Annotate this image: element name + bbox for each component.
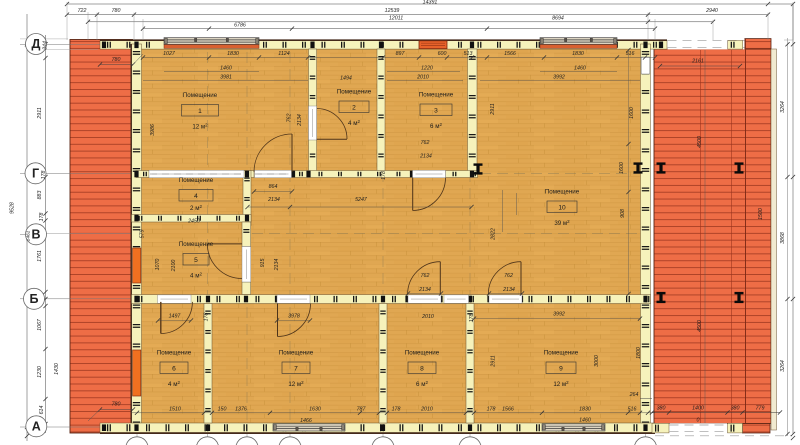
svg-text:762: 762 [421, 140, 430, 146]
svg-text:150: 150 [218, 407, 227, 413]
svg-text:178: 178 [39, 213, 45, 222]
svg-text:Д: Д [32, 37, 41, 51]
svg-text:2911: 2911 [490, 103, 496, 115]
svg-text:178: 178 [487, 407, 496, 413]
svg-text:380: 380 [731, 406, 740, 412]
svg-text:8694: 8694 [552, 16, 564, 22]
svg-text:780: 780 [112, 401, 121, 407]
svg-text:787: 787 [357, 407, 367, 413]
svg-text:1: 1 [198, 108, 202, 115]
svg-text:2: 2 [352, 104, 356, 111]
svg-text:1761: 1761 [37, 250, 43, 262]
svg-text:1460: 1460 [220, 66, 232, 72]
svg-text:1400: 1400 [692, 406, 704, 412]
svg-text:1220: 1220 [421, 66, 433, 72]
svg-text:2134: 2134 [267, 197, 280, 203]
svg-text:Помещение: Помещение [545, 189, 580, 196]
svg-text:780: 780 [112, 8, 121, 14]
svg-text:А: А [32, 419, 41, 433]
svg-text:3868: 3868 [780, 232, 786, 244]
svg-text:1566: 1566 [502, 407, 514, 413]
svg-text:897: 897 [396, 51, 406, 57]
svg-text:908: 908 [620, 209, 626, 218]
svg-text:614: 614 [39, 406, 45, 415]
svg-text:14391: 14391 [423, 0, 438, 5]
svg-text:2911: 2911 [37, 107, 43, 119]
svg-text:1830: 1830 [572, 51, 584, 57]
svg-text:5247: 5247 [355, 197, 368, 203]
svg-text:1230: 1230 [37, 366, 43, 378]
svg-text:1497: 1497 [169, 314, 182, 320]
svg-text:1460: 1460 [579, 417, 591, 423]
svg-text:178: 178 [392, 407, 401, 413]
svg-text:2134: 2134 [502, 287, 515, 293]
svg-text:1510: 1510 [169, 407, 181, 413]
svg-text:344: 344 [43, 41, 49, 50]
svg-text:1566: 1566 [504, 51, 516, 57]
svg-text:Б: Б [30, 292, 39, 306]
svg-text:4500: 4500 [697, 136, 703, 148]
svg-text:Помещение: Помещение [183, 92, 218, 99]
svg-text:762: 762 [287, 114, 293, 123]
svg-text:779: 779 [756, 406, 765, 412]
svg-text:380: 380 [657, 406, 666, 412]
svg-text:1376: 1376 [235, 407, 247, 413]
svg-text:1027: 1027 [163, 51, 176, 57]
svg-text:3992: 3992 [553, 312, 565, 318]
svg-text:2010: 2010 [420, 407, 433, 413]
svg-text:1466: 1466 [300, 418, 312, 424]
svg-text:2911: 2911 [491, 355, 497, 367]
svg-text:Помещение: Помещение [544, 350, 579, 357]
svg-text:3981: 3981 [220, 75, 232, 81]
svg-text:Помещение: Помещение [179, 241, 214, 248]
svg-text:12011: 12011 [389, 16, 403, 22]
svg-text:600: 600 [438, 51, 447, 57]
svg-text:3000: 3000 [594, 355, 600, 367]
svg-text:915: 915 [260, 259, 266, 268]
svg-text:8: 8 [420, 365, 424, 372]
svg-text:10: 10 [558, 204, 566, 211]
svg-text:264: 264 [629, 392, 639, 398]
svg-text:1600: 1600 [619, 162, 625, 174]
svg-text:0: 0 [697, 418, 700, 424]
svg-text:В: В [31, 227, 40, 241]
svg-text:722: 722 [78, 8, 87, 14]
svg-text:1124: 1124 [278, 51, 289, 57]
svg-text:9: 9 [559, 365, 563, 372]
svg-text:3992: 3992 [553, 75, 565, 81]
svg-text:1461: 1461 [26, 230, 32, 241]
svg-text:3: 3 [434, 107, 438, 114]
svg-text:762: 762 [421, 273, 430, 279]
svg-text:Помещение: Помещение [179, 177, 214, 184]
svg-text:Помещение: Помещение [405, 350, 440, 357]
svg-text:1430: 1430 [54, 363, 60, 375]
svg-text:1460: 1460 [574, 66, 586, 72]
svg-text:762: 762 [504, 273, 513, 279]
svg-text:3264: 3264 [780, 360, 786, 372]
svg-text:1070: 1070 [155, 259, 161, 271]
svg-text:1830: 1830 [579, 407, 591, 413]
svg-text:Помещение: Помещение [337, 89, 372, 96]
svg-text:2450: 2450 [187, 219, 200, 225]
svg-text:2161: 2161 [691, 59, 704, 65]
svg-text:1630: 1630 [309, 407, 321, 413]
svg-text:12539: 12539 [385, 8, 400, 14]
svg-text:1600: 1600 [629, 107, 635, 119]
svg-text:2822: 2822 [491, 228, 497, 241]
svg-text:6: 6 [172, 365, 176, 372]
svg-text:178: 178 [469, 314, 475, 323]
svg-text:4: 4 [194, 193, 198, 200]
svg-text:Г: Г [32, 166, 39, 180]
svg-text:2134: 2134 [419, 154, 432, 160]
svg-text:178: 178 [41, 171, 47, 180]
svg-text:2100: 2100 [171, 260, 177, 273]
svg-text:Помещение: Помещение [157, 350, 192, 357]
svg-text:3978: 3978 [288, 314, 300, 320]
svg-text:2134: 2134 [297, 114, 303, 127]
svg-text:5: 5 [194, 257, 198, 264]
svg-text:516: 516 [628, 407, 637, 413]
svg-text:6786: 6786 [234, 22, 246, 28]
svg-text:2134: 2134 [274, 259, 280, 272]
svg-text:579: 579 [140, 230, 146, 239]
svg-text:1494: 1494 [340, 76, 352, 82]
svg-text:1500: 1500 [758, 208, 764, 220]
svg-text:Помещение: Помещение [419, 92, 454, 99]
svg-text:3264: 3264 [780, 101, 786, 113]
svg-text:3986: 3986 [150, 124, 156, 136]
svg-text:513: 513 [464, 51, 473, 57]
svg-text:883: 883 [37, 191, 43, 200]
svg-text:178: 178 [204, 313, 210, 322]
svg-text:1830: 1830 [227, 51, 239, 57]
svg-text:780: 780 [112, 57, 121, 63]
svg-text:864: 864 [269, 184, 278, 190]
svg-text:2940: 2940 [705, 8, 718, 14]
svg-text:2010: 2010 [421, 314, 434, 320]
svg-text:4500: 4500 [697, 320, 703, 332]
svg-text:1800: 1800 [636, 347, 642, 359]
svg-text:Помещение: Помещение [279, 350, 314, 357]
svg-text:2010: 2010 [416, 75, 429, 81]
svg-text:1067: 1067 [37, 318, 43, 331]
svg-text:178: 178 [381, 171, 387, 180]
svg-text:2134: 2134 [418, 287, 431, 293]
svg-text:9528: 9528 [10, 202, 16, 214]
svg-text:7: 7 [294, 365, 298, 372]
